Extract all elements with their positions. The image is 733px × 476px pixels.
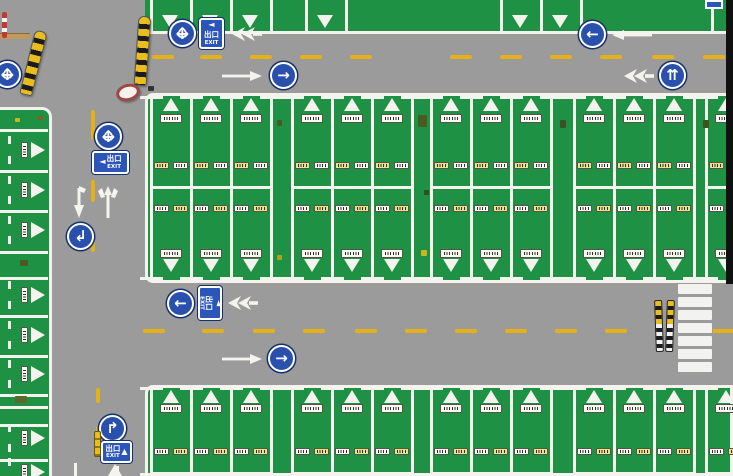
bay-mid-line [150,186,273,189]
bay-arrow-right-icon [31,430,45,446]
ground-speck [15,396,27,403]
exit-sign: ◄出口EXIT [198,286,222,320]
bay-bracket-stub [500,96,523,99]
bay-bracket-stub [180,387,203,390]
bay-info-label [375,448,390,455]
bay-arrow-up-icon [344,390,360,403]
bay-number-plate-text-smudge [164,117,178,120]
bay-info-label-text-smudge [237,450,246,452]
sign-arrow-glyph-icon: → [277,68,290,83]
bay-info-label-text-smudge [357,450,366,452]
bay-info-label [234,448,249,455]
bay-bracket-stub [695,277,718,280]
bay-number-plate-text-smudge [305,117,319,120]
bay-number-plate [520,249,542,258]
bay-info-label-text-smudge [157,450,166,452]
exit-sign: ◄出口EXIT [92,151,129,174]
bay-number-plate [240,114,262,123]
top-strip-divider [305,0,308,31]
bay-number-plate [21,287,28,303]
bollard-top [667,301,674,324]
bay-arrow-down-icon [344,259,360,272]
ground-speck [15,118,20,122]
bay-info-label [577,205,592,212]
bay-bracket-stub [695,96,718,99]
striped-bollard [654,300,664,352]
bay-bracket-stub [260,96,283,99]
bollard-top [655,301,662,324]
exit-arrow-icon: ◄ [208,21,214,30]
bay-info-label [474,205,489,212]
bay-bracket-stub [643,387,666,390]
bay-number-plate [480,114,502,123]
bay-number-plate [200,249,222,258]
bay-bracket-stub [8,216,11,224]
bay-number-plate [381,404,403,413]
bay-divider-line [653,387,656,476]
bay-info-label-text-smudge [599,450,608,452]
bay-info-label [728,448,733,455]
left-bay-separator [0,251,48,254]
exit-sign-content: ◄出口EXIT [99,155,121,169]
bay-info-label-text-smudge [256,207,265,209]
bay-info-label [375,162,390,169]
bay-info-label [173,162,188,169]
bay-arrow-up-icon [384,98,400,111]
bay-info-label [335,205,350,212]
bay-number-plate [583,114,605,123]
sign-arrow-glyph-icon: ⇈ [666,68,679,83]
sign-go-right: → [270,62,297,89]
bay-arrow-up-icon [483,98,499,111]
lane-dash-yellow [200,55,222,59]
bay-info-label-text-smudge [298,164,307,166]
bay-arrow-right-icon [31,464,45,476]
bay-info-label-text-smudge [357,164,366,166]
lane-dash-yellow [713,329,733,333]
bay-arrow-down-icon [317,15,333,28]
bay-info-label [617,162,632,169]
bay-arrow-down-icon [483,259,499,272]
bay-divider-line [411,387,414,476]
bay-arrow-down-icon [626,259,642,272]
bay-arrow-down-icon [384,259,400,272]
bay-info-label [596,162,611,169]
bay-info-label [253,205,268,212]
bay-arrow-up-icon [586,98,602,111]
bay-info-label [295,205,310,212]
bay-info-label-text-smudge [620,450,629,452]
bay-info-label-text-smudge [660,164,669,166]
bay-divider-line [510,387,513,476]
bay-number-plate-text-smudge [23,433,25,443]
bay-info-label-text-smudge [639,207,648,209]
bay-number-plate [21,142,28,158]
bay-number-plate [623,114,645,123]
bollard-body [666,323,673,351]
bay-number-plate-text-smudge [524,117,538,120]
bay-bracket-stub [8,424,11,432]
ground-speck [418,115,427,127]
ground-speck [38,116,43,120]
bay-number-plate [160,114,182,123]
bay-bracket-stub [140,387,163,390]
bay-info-label-text-smudge [496,164,505,166]
bay-number-plate-text-smudge [164,407,178,410]
bay-number-plate-text-smudge [23,330,25,340]
bay-info-label [354,205,369,212]
exit-label-cn: 出口 [105,445,120,453]
bay-bracket-stub [361,277,384,280]
bay-arrow-down-icon [304,259,320,272]
four-way-arrows-icon: ↕ [171,22,194,45]
bay-info-label [514,205,529,212]
bay-info-label [314,448,329,455]
bay-bracket-stub [361,387,384,390]
bay-arrow-right-icon [31,366,45,382]
bay-info-label-text-smudge [378,450,387,452]
bay-number-plate [160,249,182,258]
bay-number-plate [480,404,502,413]
bay-info-label-text-smudge [256,164,265,166]
bay-number-plate [583,404,605,413]
bay-bracket-stub [281,96,304,99]
top-strip-divider [540,0,543,31]
bay-info-label [493,205,508,212]
bay-number-plate [240,249,262,258]
lane-dash-yellow [202,329,224,333]
parking-lot-aerial-view: ↔↕→←⇈↔↕↲←→↱↔↕◄出口EXIT◄出口EXIT◄出口EXIT出口EXIT… [0,0,733,476]
bay-info-label-text-smudge [338,207,347,209]
bay-number-plate-text-smudge [385,117,399,120]
bay-info-label-text-smudge [338,450,347,452]
bay-divider-line [270,387,273,476]
lane-dash-white [74,463,77,476]
bay-bracket-stub [8,176,11,184]
bay-info-label [577,448,592,455]
bay-bracket-stub [321,96,344,99]
bay-mid-line [430,472,553,475]
exit-label-en: EXIT [107,164,121,170]
crosswalk-stripe [678,362,712,372]
lane-dash-yellow [450,55,472,59]
bay-info-label-text-smudge [378,164,387,166]
bay-info-label [636,205,651,212]
bay-bracket-stub [643,96,666,99]
top-strip-divider [345,0,348,31]
bay-info-label-text-smudge [679,164,688,166]
bay-info-label-text-smudge [317,450,326,452]
lane-dash-yellow [152,55,174,59]
bay-info-label-text-smudge [197,164,206,166]
bay-bracket-stub [460,387,483,390]
bay-info-label-text-smudge [712,207,721,209]
bay-arrow-up-icon [666,390,682,403]
lane-dash-yellow [500,55,522,59]
bay-info-label-text-smudge [517,450,526,452]
bay-bracket-stub [180,277,203,280]
bay-info-label [314,205,329,212]
bay-info-label [636,162,651,169]
bay-bracket-stub [180,96,203,99]
ground-speck [20,260,28,266]
lane-dash-yellow [555,329,577,333]
bay-info-label [154,162,169,169]
bay-bracket-stub [603,96,626,99]
road-marking-dart-left-icon [232,27,262,41]
bay-divider-line [573,387,576,476]
bay-bracket-stub [500,277,523,280]
bay-number-plate [623,404,645,413]
bay-arrow-up-icon [304,390,320,403]
left-bay-separator [0,315,48,318]
bay-number-plate [440,404,462,413]
crosswalk-stripe [678,349,712,359]
bay-info-label-text-smudge [357,207,366,209]
bay-info-label [295,448,310,455]
bay-arrow-right-icon [31,142,45,158]
bay-info-label-text-smudge [216,450,225,452]
left-bay-separator [0,210,48,213]
bay-arrow-up-icon [523,390,539,403]
bay-bracket-stub [603,387,626,390]
bay-bracket-stub [460,96,483,99]
bay-number-plate-text-smudge [204,117,218,120]
bay-arrow-up-icon [384,390,400,403]
bay-bracket-stub [420,277,443,280]
bay-number-plate [520,114,542,123]
sign-go-right: → [268,345,295,372]
bay-arrow-down-icon [243,259,259,272]
bay-number-plate-text-smudge [524,252,538,255]
bay-number-plate-text-smudge [345,407,359,410]
bay-info-label [173,205,188,212]
bay-info-label [474,448,489,455]
lane-dash-yellow [250,55,272,59]
bay-number-plate-text-smudge [627,117,641,120]
bay-bracket-stub [220,277,243,280]
bay-info-label-text-smudge [477,450,486,452]
sign-fork-ahead: ⇈ [659,62,686,89]
lane-dash-yellow [600,55,622,59]
bay-bracket-stub [563,387,586,390]
bay-bracket-stub [8,380,11,388]
bay-arrow-up-icon [718,390,733,403]
bay-info-label [394,448,409,455]
bay-info-label-text-smudge [477,207,486,209]
bay-info-label [657,448,672,455]
bay-arrow-down-icon [163,259,179,272]
bay-number-plate [301,249,323,258]
lane-dash-yellow [355,329,377,333]
bay-info-label [709,162,724,169]
bay-mid-line [573,472,696,475]
bay-info-label-text-smudge [580,164,589,166]
left-bay-separator [0,406,48,409]
bay-number-plate [341,249,363,258]
left-bay-separator [0,355,48,358]
bay-mid-line [573,186,696,189]
bay-number-plate-text-smudge [484,252,498,255]
bay-mid-line [291,472,414,475]
top-strip-divider [270,0,273,31]
ground-speck [424,190,429,195]
road-marking-arrow-tip-icon [108,464,122,476]
lane-dash-yellow [703,55,725,59]
lane-dash-yellow [96,388,100,403]
bay-arrow-down-icon [666,259,682,272]
bay-info-label-text-smudge [580,450,589,452]
bay-bracket-stub [8,196,11,204]
bay-info-label-text-smudge [197,207,206,209]
ground-speck [560,120,566,128]
bay-info-label-text-smudge [679,450,688,452]
bay-bracket-stub [8,321,11,329]
bay-info-label [213,162,228,169]
bay-info-label-text-smudge [237,164,246,166]
bay-number-plate-text-smudge [23,145,25,155]
bay-number-plate-text-smudge [345,252,359,255]
bay-info-label-text-smudge [712,450,721,452]
sign-arrow-glyph-icon: ← [586,27,599,42]
bay-number-plate [663,114,685,123]
bay-number-plate-text-smudge [345,117,359,120]
bay-bracket-stub [220,387,243,390]
striped-bollard [665,300,675,352]
sign-turn-down-left: ↲ [67,223,94,250]
bay-number-plate-text-smudge [667,117,681,120]
bay-info-label [657,162,672,169]
bay-info-label [194,448,209,455]
bay-info-label [213,205,228,212]
bay-bracket-stub [140,277,163,280]
road-marking-dart-left-icon [228,296,258,310]
bay-info-label [453,205,468,212]
bay-number-plate-text-smudge [23,185,25,195]
bay-info-label-text-smudge [157,207,166,209]
bay-info-label-text-smudge [397,164,406,166]
bay-info-label-text-smudge [237,207,246,209]
bay-info-label-text-smudge [437,207,446,209]
bay-bracket-stub [460,277,483,280]
bay-info-label-text-smudge [599,164,608,166]
bay-number-plate-text-smudge [164,252,178,255]
bay-bracket-stub [420,387,443,390]
small-red-post [2,12,7,38]
bay-number-plate-text-smudge [23,467,25,476]
bay-info-label-text-smudge [317,164,326,166]
road-marking-fork-up-icon [97,186,119,218]
bay-bracket-stub [603,277,626,280]
bay-info-label-text-smudge [176,207,185,209]
bay-number-plate [21,430,28,446]
bay-info-label-text-smudge [338,164,347,166]
bay-info-label [474,162,489,169]
lane-dash-yellow [652,55,674,59]
edge-dark-band [726,0,733,284]
bay-number-plate [663,404,685,413]
bay-info-label [596,205,611,212]
bay-info-label [354,162,369,169]
bay-info-label [234,162,249,169]
bay-bracket-stub [321,277,344,280]
exit-label-cn: 出口 [204,31,219,39]
bay-arrow-down-icon [512,15,528,28]
sign-turn-right: ↱ [99,415,126,442]
bay-number-plate-text-smudge [484,407,498,410]
bay-info-label [434,162,449,169]
bay-bracket-stub [140,96,163,99]
bay-number-plate-text-smudge [244,252,258,255]
bay-arrow-up-icon [666,98,682,111]
bay-number-plate-text-smudge [627,252,641,255]
bay-info-label [394,205,409,212]
bay-bracket-stub [695,387,718,390]
bay-number-plate [160,404,182,413]
bay-info-label-text-smudge [620,164,629,166]
bay-info-label [314,162,329,169]
bay-number-plate [520,404,542,413]
bay-arrow-right-icon [31,327,45,343]
bay-info-label-text-smudge [456,164,465,166]
bay-number-plate-text-smudge [587,407,601,410]
ground-speck [703,120,709,128]
bay-divider-line [550,387,553,476]
bay-arrow-up-icon [523,98,539,111]
exit-label-en: EXIT [106,453,120,459]
bay-bracket-stub [643,277,666,280]
bay-info-label [617,205,632,212]
bay-bracket-stub [281,387,304,390]
bay-bracket-stub [563,277,586,280]
crosswalk-stripe [678,284,712,294]
bay-bracket-stub [260,387,283,390]
bay-info-label-text-smudge [496,207,505,209]
bay-number-plate [480,249,502,258]
lane-dash-yellow [143,329,165,333]
bay-info-label-text-smudge [620,207,629,209]
bay-info-label [434,448,449,455]
bay-number-plate-text-smudge [444,252,458,255]
left-bay-separator [0,170,48,173]
bay-info-label-text-smudge [599,207,608,209]
bay-info-label [154,448,169,455]
bay-info-label-text-smudge [712,164,721,166]
bay-info-label [493,162,508,169]
sign-arrow-glyph-icon: ↱ [106,421,119,436]
road-marking-arrow-right-icon [222,71,262,81]
road-marking-arrow-right-icon [222,354,262,364]
ground-speck [148,86,154,91]
bay-number-plate [21,366,28,382]
lane-dash-yellow [505,329,527,333]
bay-number-plate [341,114,363,123]
bay-arrow-up-icon [443,98,459,111]
bay-arrow-right-icon [31,182,45,198]
bay-info-label-text-smudge [216,164,225,166]
bay-number-plate [21,182,28,198]
bay-divider-line [371,387,374,476]
bay-number-plate-text-smudge [305,407,319,410]
bay-info-label-text-smudge [397,207,406,209]
bay-arrow-down-icon [203,259,219,272]
bay-mid-line [430,186,553,189]
exit-text: 出口EXIT [204,31,219,45]
bay-info-label [676,448,691,455]
lane-dash-yellow [405,329,427,333]
bay-number-plate-text-smudge [385,407,399,410]
ground-speck [277,120,282,126]
